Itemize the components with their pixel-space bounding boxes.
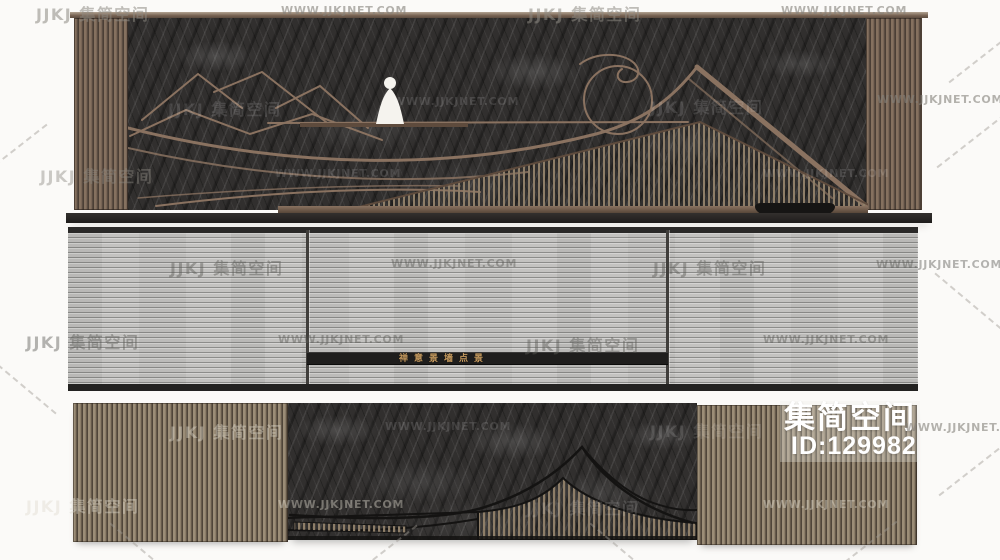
middle-panel-bottom-rail bbox=[68, 384, 918, 391]
bottom-panel-left-slats bbox=[73, 403, 288, 542]
top-panel-plinth bbox=[66, 213, 932, 223]
top-panel-left-slat-column bbox=[74, 18, 128, 210]
ledge-line bbox=[268, 122, 688, 123]
slat-filled-peak bbox=[478, 478, 697, 540]
watermark-dash bbox=[936, 114, 1000, 169]
product-badge-id: ID:129982 bbox=[791, 434, 917, 459]
bottom-panel-line-art bbox=[288, 403, 697, 540]
plaque-band: 禅意景墙点景 bbox=[307, 352, 668, 365]
top-panel-line-art bbox=[128, 22, 868, 210]
mountain-peaks-line-art bbox=[130, 72, 382, 140]
watermark-dash bbox=[938, 442, 1000, 497]
watermark-dash bbox=[0, 124, 48, 179]
top-panel-right-slat-column bbox=[866, 18, 922, 210]
rock-base-edge bbox=[288, 536, 697, 540]
watermark-dash bbox=[934, 273, 1000, 330]
product-showcase-image: 禅意景墙点景 集简空间 ID:129982 JJKJ 集简空间 WWW.JJKJ… bbox=[0, 0, 1000, 560]
figure-silhouette bbox=[376, 77, 404, 124]
plaque-text: 禅意景墙点景 bbox=[399, 354, 489, 363]
product-badge-name: 集简空间 bbox=[784, 402, 916, 433]
watermark-dash bbox=[0, 358, 57, 415]
sweeping-curve-lower bbox=[128, 148, 528, 179]
watermark-dash bbox=[948, 29, 1000, 84]
